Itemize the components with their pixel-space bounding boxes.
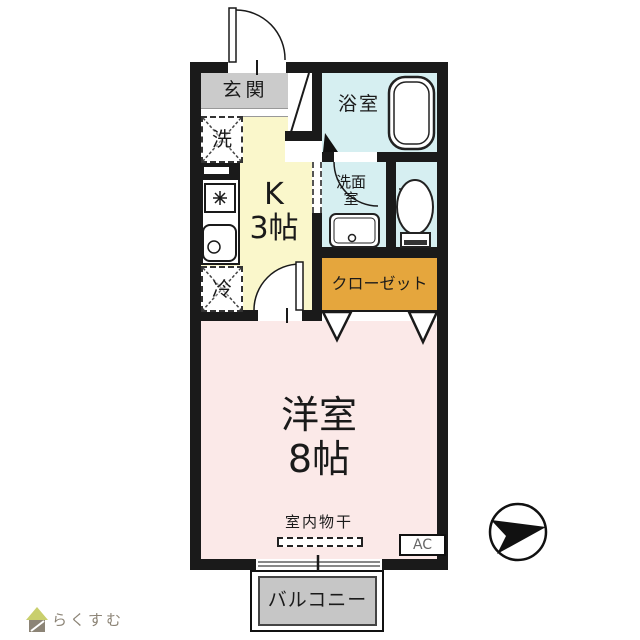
wall bbox=[322, 152, 334, 162]
wall bbox=[312, 247, 437, 258]
washroom-label: 洗面室 bbox=[322, 166, 380, 216]
western-room-label: 洋室8帖 bbox=[201, 392, 437, 484]
floorplan-canvas: 玄関 浴室 K3帖 洗面室 洗 冷 クローゼット 洋室8帖 室内物干 AC バル… bbox=[0, 0, 640, 640]
house-logo-icon bbox=[26, 607, 48, 632]
entrance-label: 玄関 bbox=[201, 73, 290, 108]
wall bbox=[386, 162, 396, 247]
wall bbox=[312, 213, 322, 310]
entrance-door-opening bbox=[228, 62, 286, 73]
room-toilet bbox=[396, 162, 437, 250]
closet-threshold bbox=[322, 310, 437, 312]
balcony-window-opening bbox=[256, 559, 382, 570]
kitchen-counter bbox=[201, 178, 240, 265]
ac-label: AC bbox=[399, 534, 446, 556]
indoor-drying-rail bbox=[277, 537, 363, 547]
north-arrow-icon bbox=[490, 504, 546, 560]
indoor-drying-label: 室内物干 bbox=[201, 512, 437, 534]
bathroom-label: 浴室 bbox=[326, 88, 392, 122]
closet-label: クローゼット bbox=[322, 258, 437, 310]
wall bbox=[377, 152, 437, 162]
kitchen-passage bbox=[285, 141, 322, 162]
washroom-opening bbox=[312, 162, 322, 213]
wall-niche bbox=[204, 167, 229, 174]
wall bbox=[285, 131, 322, 141]
fridge-label: 冷 bbox=[201, 266, 243, 312]
site-logo-text: らくすむ bbox=[52, 608, 162, 634]
washer-label: 洗 bbox=[201, 116, 243, 163]
wall bbox=[302, 310, 322, 321]
balcony-label: バルコニー bbox=[258, 576, 377, 626]
kitchen-label: K3帖 bbox=[240, 176, 308, 248]
